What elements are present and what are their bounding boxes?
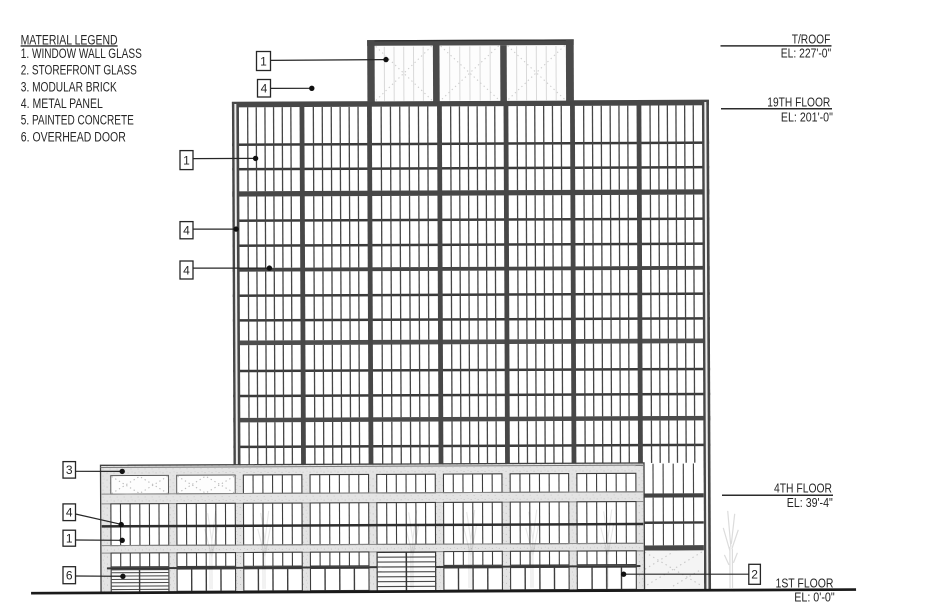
svg-text:1ST FLOOR: 1ST FLOOR — [776, 575, 834, 590]
svg-text:6. OVERHEAD DOOR: 6. OVERHEAD DOOR — [21, 129, 126, 144]
svg-text:4. METAL PANEL: 4. METAL PANEL — [21, 96, 103, 111]
svg-text:4TH FLOOR: 4TH FLOOR — [774, 480, 832, 495]
svg-text:2. STOREFRONT GLASS: 2. STOREFRONT GLASS — [21, 63, 137, 78]
svg-text:3. MODULAR BRICK: 3. MODULAR BRICK — [21, 79, 117, 94]
svg-text:19TH FLOOR: 19TH FLOOR — [767, 94, 830, 109]
svg-text:5. PAINTED CONCRETE: 5. PAINTED CONCRETE — [21, 113, 134, 128]
svg-text:1: 1 — [260, 54, 267, 68]
svg-text:EL: 227'-0": EL: 227'-0" — [781, 45, 832, 60]
svg-text:EL: 39'-4": EL: 39'-4" — [787, 495, 833, 510]
svg-text:3: 3 — [66, 463, 73, 477]
svg-text:4: 4 — [261, 82, 268, 96]
svg-text:4: 4 — [183, 224, 190, 238]
svg-text:2: 2 — [751, 568, 758, 582]
svg-text:4: 4 — [66, 506, 73, 520]
svg-text:T/ROOF: T/ROOF — [792, 31, 831, 46]
svg-text:4: 4 — [183, 263, 190, 277]
svg-text:1: 1 — [66, 532, 73, 546]
svg-text:EL: 201'-0": EL: 201'-0" — [781, 109, 833, 124]
svg-text:1: 1 — [183, 153, 190, 167]
svg-text:1. WINDOW WALL GLASS: 1. WINDOW WALL GLASS — [21, 46, 142, 61]
svg-text:6: 6 — [66, 569, 73, 583]
svg-text:EL: 0'-0": EL: 0'-0" — [794, 590, 835, 605]
